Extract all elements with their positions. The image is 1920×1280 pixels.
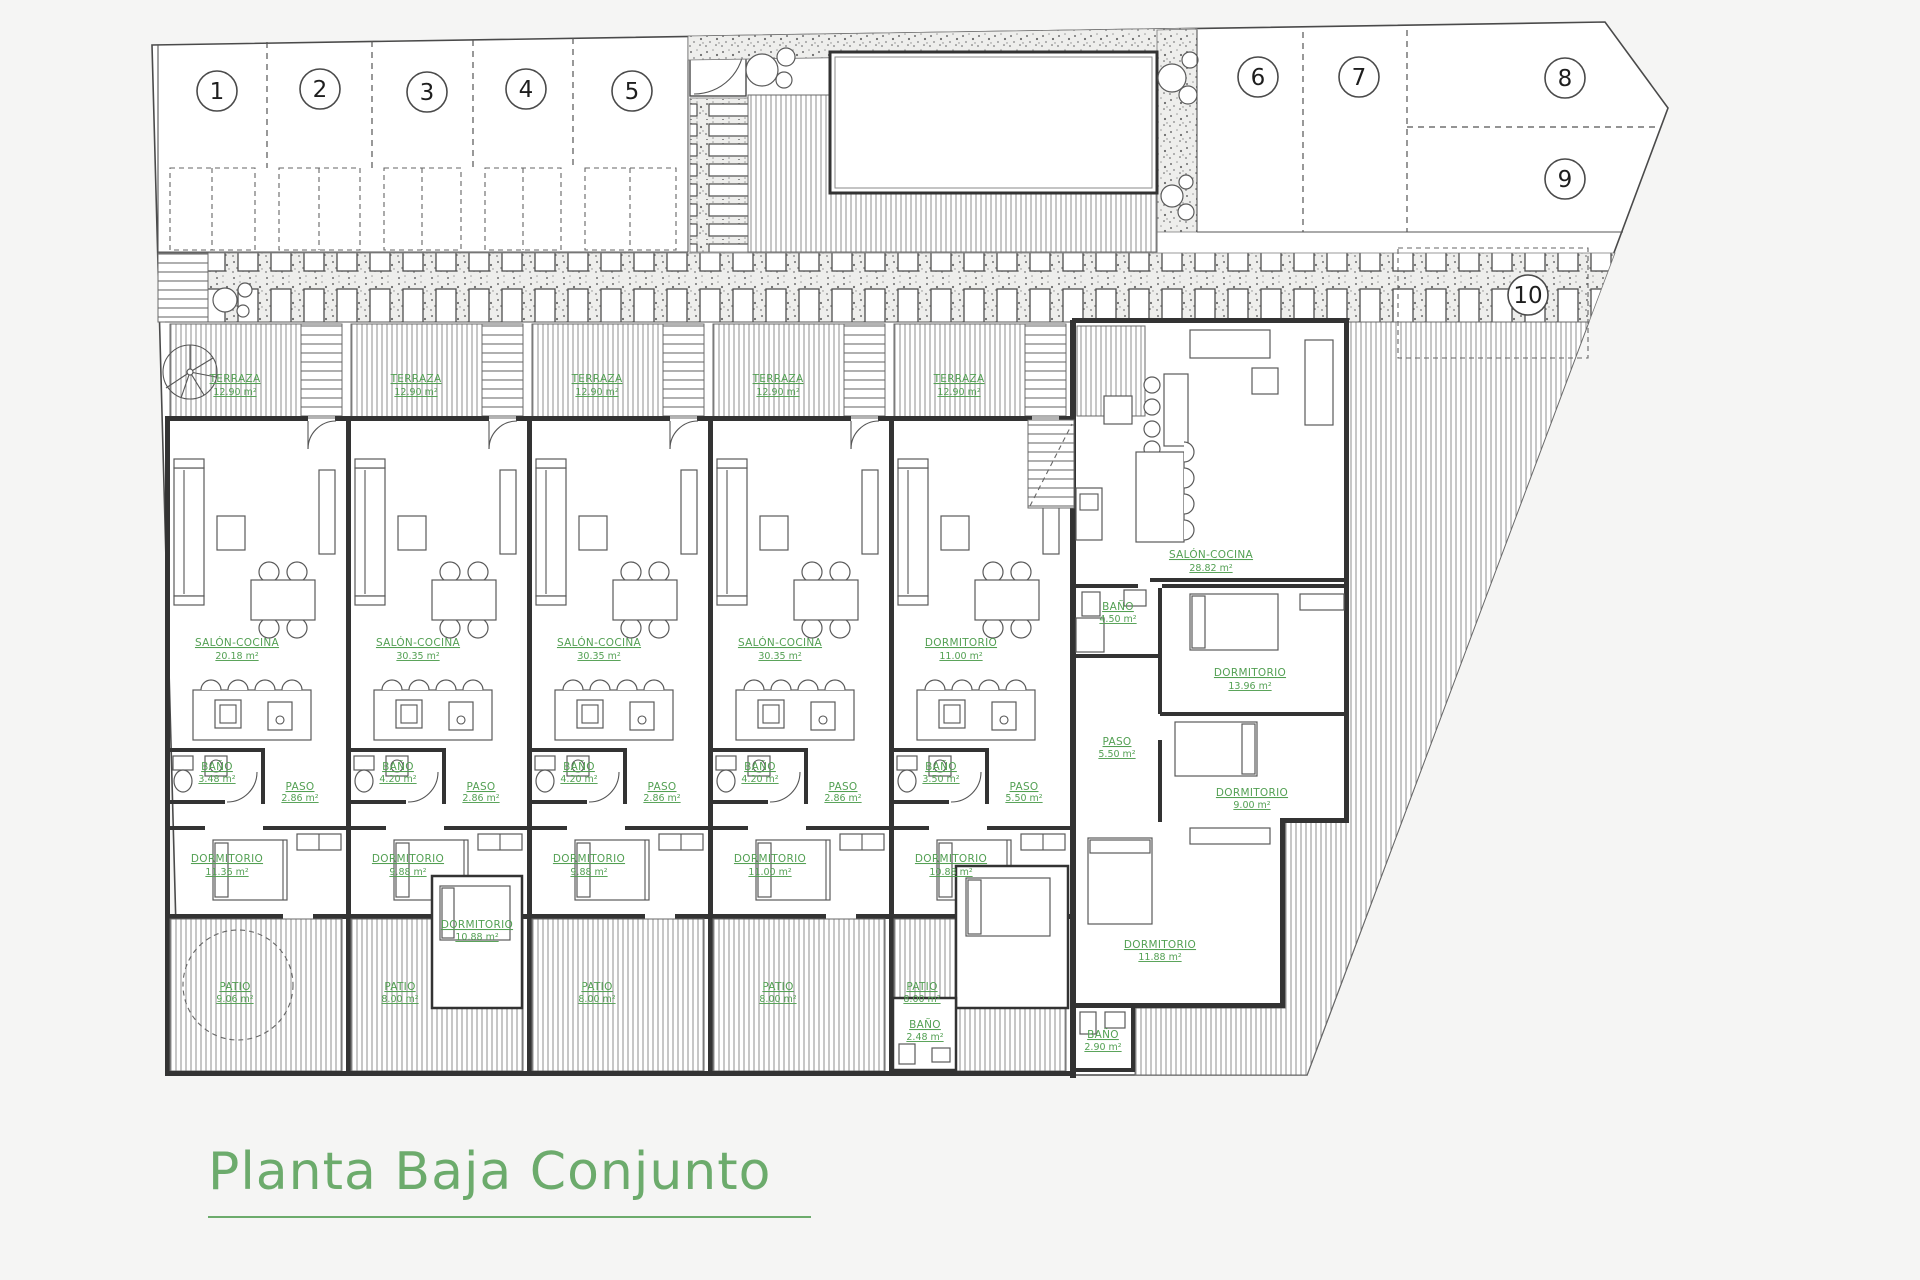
patio-area: 8.00 m² bbox=[903, 994, 940, 1005]
terraza-area: 12.90 m² bbox=[213, 387, 256, 398]
patio-area: 8.00 m² bbox=[381, 994, 418, 1005]
terraza-label: TERRAZA bbox=[209, 373, 261, 385]
dormitorio-area: 10.88 m² bbox=[929, 867, 972, 878]
bano-label: BAÑO bbox=[744, 760, 776, 773]
patio-label: PATIO bbox=[219, 981, 250, 993]
dormitorio-label: DORMITORIO bbox=[191, 853, 263, 865]
paso-area: 2.86 m² bbox=[643, 793, 680, 804]
terraza-area: 12.90 m² bbox=[575, 387, 618, 398]
bano-area: 3.48 m² bbox=[198, 774, 235, 785]
dormitorio-area: 11.00 m² bbox=[748, 867, 791, 878]
paso-area: 2.86 m² bbox=[462, 793, 499, 804]
parking-number-10: 10 bbox=[1513, 283, 1542, 309]
patio-label: PATIO bbox=[384, 981, 415, 993]
salon-area: 30.35 m² bbox=[577, 651, 620, 662]
house-dorm2-area: 9.00 m² bbox=[1233, 800, 1270, 811]
dormitorio2-label: DORMITORIO bbox=[441, 919, 513, 931]
floor-plan-page: 1 2 3 4 5 6 7 8 9 10 TERRAZA 12.90 m² SA… bbox=[0, 0, 1920, 1280]
house-bano2-label: BAÑO bbox=[1087, 1028, 1119, 1041]
bano-area: 4.20 m² bbox=[379, 774, 416, 785]
parking-number-6: 6 bbox=[1251, 65, 1266, 91]
dormitorio-label: DORMITORIO bbox=[372, 853, 444, 865]
paso-area: 5.50 m² bbox=[1005, 793, 1042, 804]
dormitorio-label: DORMITORIO bbox=[915, 853, 987, 865]
terraza-label: TERRAZA bbox=[933, 373, 985, 385]
house-bano1-area: 4.50 m² bbox=[1099, 614, 1136, 625]
pool-area bbox=[688, 28, 1198, 252]
dormitorio-area: 9.88 m² bbox=[389, 867, 426, 878]
terraza-label: TERRAZA bbox=[571, 373, 623, 385]
bano-area: 4.20 m² bbox=[741, 774, 778, 785]
dormitorio2-area: 10.88 m² bbox=[455, 932, 498, 943]
house-bano1-label: BAÑO bbox=[1102, 600, 1134, 613]
parking-number-2: 2 bbox=[313, 77, 328, 103]
salon-area: 20.18 m² bbox=[215, 651, 258, 662]
paso-label: PASO bbox=[829, 781, 858, 793]
patio-area: 8.00 m² bbox=[578, 994, 615, 1005]
parking-number-8: 8 bbox=[1558, 66, 1573, 92]
parking-number-5: 5 bbox=[625, 79, 640, 105]
bano-label: BAÑO bbox=[382, 760, 414, 773]
terraza-area: 12.90 m² bbox=[937, 387, 980, 398]
dormitorio-area: 9.88 m² bbox=[570, 867, 607, 878]
patio-label: PATIO bbox=[762, 981, 793, 993]
stepping-stones bbox=[690, 98, 748, 252]
paso-area: 2.86 m² bbox=[281, 793, 318, 804]
parking-number-9: 9 bbox=[1558, 167, 1573, 193]
paso-area: 2.86 m² bbox=[824, 793, 861, 804]
salon-label: SALÓN-COCINA bbox=[376, 636, 461, 649]
dormitorio-label: DORMITORIO bbox=[734, 853, 806, 865]
site-plan-drawing: 1 2 3 4 5 6 7 8 9 10 TERRAZA 12.90 m² SA… bbox=[0, 0, 1920, 1280]
terraza-label: TERRAZA bbox=[390, 373, 442, 385]
parking-number-4: 4 bbox=[519, 77, 534, 103]
salon-area: 30.35 m² bbox=[396, 651, 439, 662]
parking-number-1: 1 bbox=[210, 79, 225, 105]
bano-area: 4.20 m² bbox=[560, 774, 597, 785]
salon-label: SALÓN-COCINA bbox=[738, 636, 823, 649]
parking-number-3: 3 bbox=[420, 80, 435, 106]
paso-label: PASO bbox=[286, 781, 315, 793]
house-dorm2-label: DORMITORIO bbox=[1216, 787, 1288, 799]
paso-label: PASO bbox=[648, 781, 677, 793]
dormitorio-front-label: DORMITORIO bbox=[925, 637, 997, 649]
salon-label: SALÓN-COCINA bbox=[557, 636, 642, 649]
bano-label: BAÑO bbox=[563, 760, 595, 773]
dormitorio-label: DORMITORIO bbox=[553, 853, 625, 865]
bano-area: 3.50 m² bbox=[922, 774, 959, 785]
house-dorm3-label: DORMITORIO bbox=[1124, 939, 1196, 951]
plan-title: Planta Baja Conjunto bbox=[208, 1142, 811, 1218]
bano2-area: 2.48 m² bbox=[906, 1032, 943, 1043]
bano-label: BAÑO bbox=[925, 760, 957, 773]
house-paso-area: 5.50 m² bbox=[1098, 749, 1135, 760]
house-salon-label: SALÓN-COCINA bbox=[1169, 548, 1254, 561]
patio-area: 8.00 m² bbox=[759, 994, 796, 1005]
paso-label: PASO bbox=[1010, 781, 1039, 793]
house-dorm1-label: DORMITORIO bbox=[1214, 667, 1286, 679]
walkway-stairs bbox=[158, 253, 208, 322]
house-bano2-area: 2.90 m² bbox=[1084, 1042, 1121, 1053]
parking-number-7: 7 bbox=[1352, 65, 1367, 91]
salon-label: SALÓN-COCINA bbox=[195, 636, 280, 649]
house-dorm3-area: 11.88 m² bbox=[1138, 952, 1181, 963]
terraza-label: TERRAZA bbox=[752, 373, 804, 385]
house-paso-label: PASO bbox=[1103, 736, 1132, 748]
paso-label: PASO bbox=[467, 781, 496, 793]
house-salon-area: 28.82 m² bbox=[1189, 563, 1232, 574]
salon-area: 30.35 m² bbox=[758, 651, 801, 662]
patio-label: PATIO bbox=[906, 981, 937, 993]
entry-path bbox=[690, 42, 748, 252]
terraza-area: 12.90 m² bbox=[756, 387, 799, 398]
patio-area: 9.06 m² bbox=[216, 994, 253, 1005]
pool bbox=[830, 52, 1157, 193]
planter-walkway bbox=[158, 253, 1615, 322]
bano-label: BAÑO bbox=[201, 760, 233, 773]
dormitorio-area: 11.36 m² bbox=[205, 867, 248, 878]
house-dorm1-area: 13.96 m² bbox=[1228, 681, 1271, 692]
patio-label: PATIO bbox=[581, 981, 612, 993]
terraza-area: 12.90 m² bbox=[394, 387, 437, 398]
dormitorio-front-area: 11.00 m² bbox=[939, 651, 982, 662]
bano2-label: BAÑO bbox=[909, 1018, 941, 1031]
